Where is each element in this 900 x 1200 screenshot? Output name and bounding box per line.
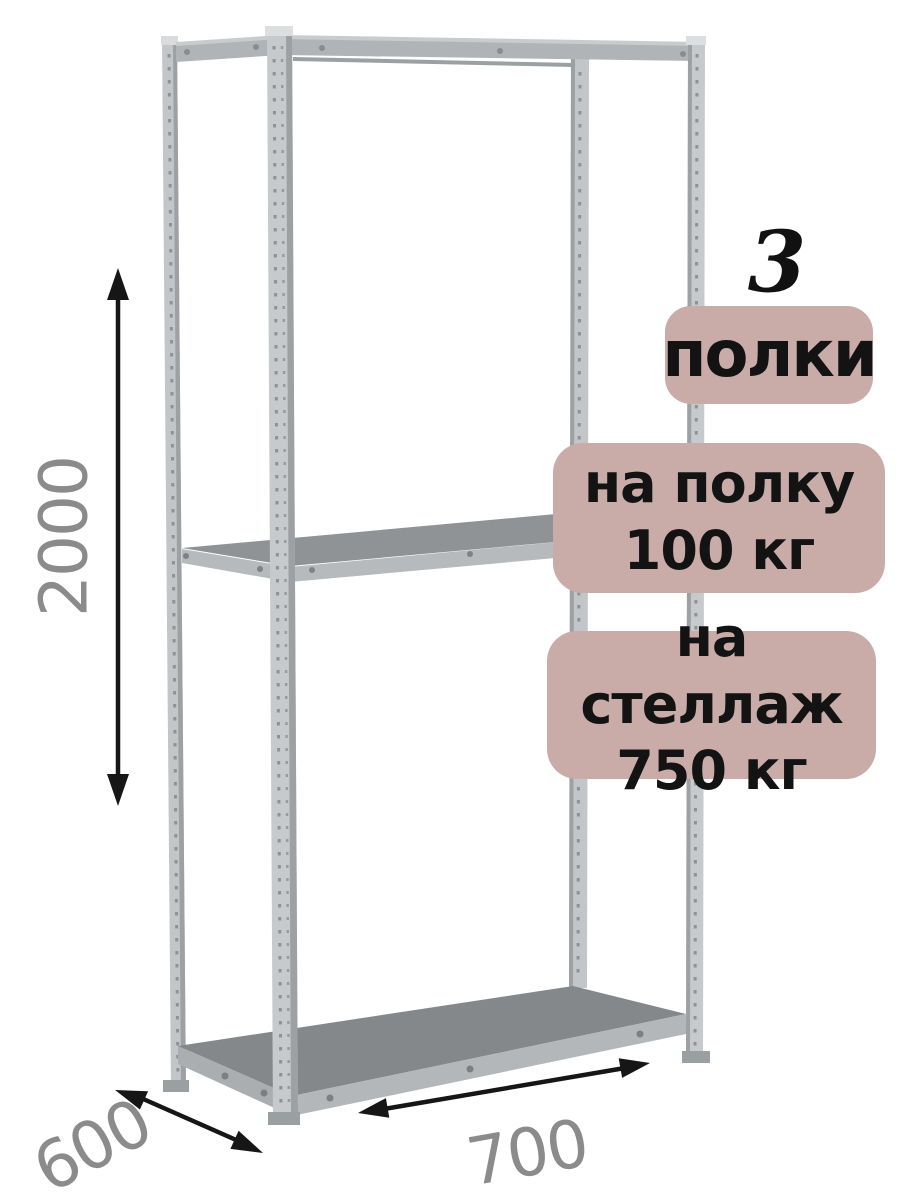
shelf-count-badge: полки bbox=[665, 306, 873, 404]
per-shelf-load-badge: на полку 100 кг bbox=[553, 443, 885, 593]
per-rack-load-badge: на стеллаж 750 кг bbox=[547, 631, 876, 779]
shelf-count-badge-label: полки bbox=[662, 318, 875, 392]
per-shelf-load-line2: 100 кг bbox=[624, 518, 814, 585]
rack-post-back-left bbox=[161, 36, 189, 1092]
rack-post-front-left bbox=[265, 26, 300, 1125]
product-card: 2000 600 700 3 полки на полку 100 кг на … bbox=[0, 0, 900, 1200]
height-arrow-icon bbox=[107, 268, 129, 806]
rack-shelf-middle bbox=[182, 510, 600, 582]
rack-shelf-bottom bbox=[178, 986, 686, 1116]
per-rack-load-line2: 750 кг bbox=[616, 738, 806, 805]
height-dimension-label: 2000 bbox=[26, 457, 103, 617]
rack-illustration bbox=[0, 0, 900, 1200]
rack-shelf-top bbox=[176, 37, 700, 65]
per-shelf-load-line1: на полку bbox=[584, 451, 854, 518]
shelf-count-number: 3 bbox=[748, 213, 806, 312]
per-rack-load-line1: на стеллаж bbox=[547, 605, 876, 739]
